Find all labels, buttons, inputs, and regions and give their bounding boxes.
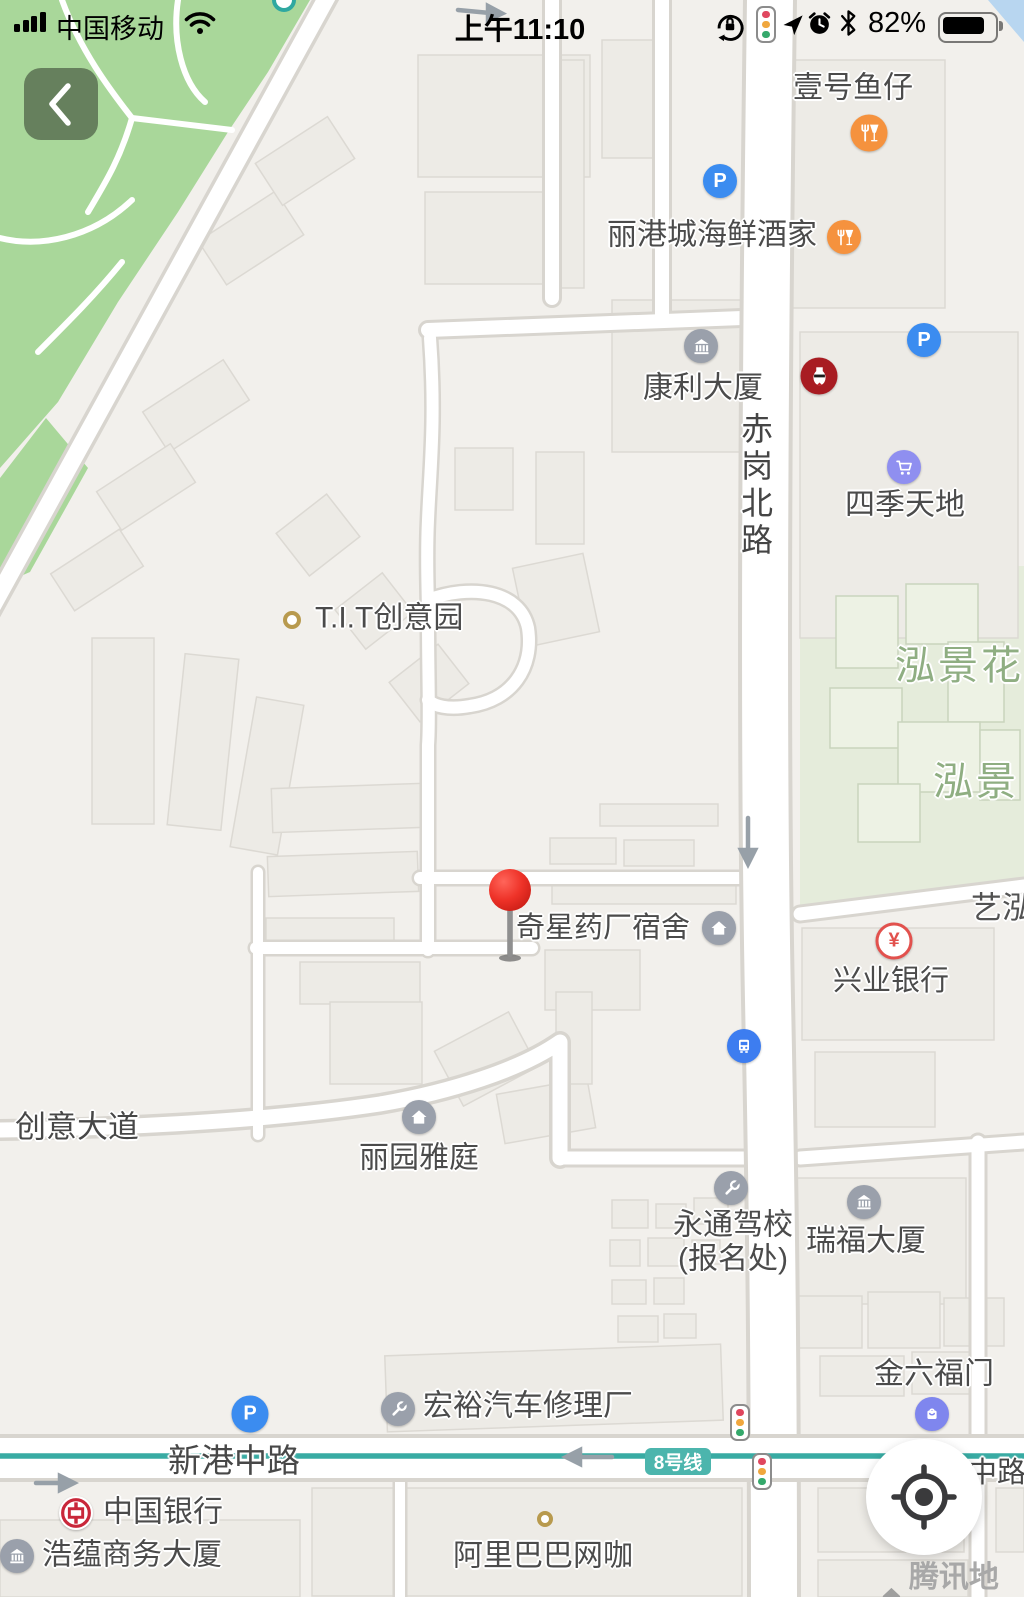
poi-dot-marker[interactable] [283, 611, 301, 629]
watermark-label: 腾讯地图 [909, 1552, 1024, 1597]
map-canvas[interactable] [0, 0, 1024, 1597]
poi-label-yongtong-line1[interactable]: 永通驾校 [673, 1209, 793, 1241]
poi-label-alibaba[interactable]: 阿里巴巴网咖 [453, 1540, 633, 1572]
poi-label-boc[interactable]: 中国银行 [103, 1496, 223, 1528]
poi-label-ruifu[interactable]: 瑞福大厦 [806, 1225, 926, 1257]
locate-me-button[interactable] [866, 1439, 982, 1555]
parking-glyph: P [243, 1403, 256, 1426]
poi-label-kangli[interactable]: 康利大厦 [643, 372, 763, 404]
home-icon[interactable] [702, 911, 736, 945]
area-label-hongjing-1: 泓景花 [895, 633, 1024, 691]
kfc-logo-icon[interactable] [801, 358, 838, 395]
battery-tip [999, 21, 1003, 31]
poi-label-yihaoyuzai[interactable]: 壹号鱼仔 [793, 72, 913, 104]
building-icon[interactable] [0, 1539, 34, 1573]
location-services-icon [779, 12, 806, 39]
poi-label-xingye-bank[interactable]: 兴业银行 [833, 966, 949, 996]
wifi-icon [182, 8, 218, 36]
poi-label-yongtong-line2[interactable]: (报名处) [678, 1243, 788, 1275]
carrier-label: 中国移动 [56, 7, 164, 46]
restaurant-icon[interactable] [851, 115, 888, 152]
parking-glyph: P [917, 329, 930, 352]
battery-icon [938, 12, 998, 43]
status-bar: 中国移动 上午11:10 82% [0, 0, 1024, 48]
poi-label-qixing[interactable]: 奇星药厂宿舍 [516, 913, 690, 943]
poi-dot-marker[interactable] [537, 1511, 553, 1527]
bus-stop-icon [727, 1029, 761, 1063]
traffic-light-icon [730, 1404, 750, 1441]
parking-icon: P [703, 164, 737, 198]
area-label-yihong: 艺泓 [971, 883, 1024, 928]
shopping-bag-icon[interactable] [915, 1397, 949, 1431]
tencent-maps-watermark: 腾讯地图 [878, 1552, 1024, 1597]
parking-icon: P [232, 1396, 269, 1433]
alarm-icon [806, 10, 833, 37]
wrench-icon[interactable] [714, 1171, 748, 1205]
yuan-glyph: ¥ [888, 930, 899, 953]
bank-yuan-icon[interactable]: ¥ [876, 923, 913, 960]
poi-label-tit[interactable]: T.I.T创意园 [315, 602, 463, 634]
bank-of-china-logo[interactable] [59, 1496, 93, 1530]
crosshair-icon [888, 1461, 960, 1533]
poi-label-liyuan[interactable]: 丽园雅庭 [359, 1142, 479, 1174]
bluetooth-icon [838, 8, 859, 38]
map-app-screen: 赤岗北路 新港中路 中路 创意大道 8号线 泓景花 泓景 艺泓 壹号鱼仔 P 丽… [0, 0, 1024, 1597]
home-icon[interactable] [402, 1100, 436, 1134]
wrench-icon[interactable] [381, 1392, 415, 1426]
poi-label-sijitiandi[interactable]: 四季天地 [845, 489, 965, 521]
tencent-maps-logo-icon [878, 1582, 905, 1597]
restaurant-icon[interactable] [827, 220, 861, 254]
building-icon[interactable] [684, 329, 718, 363]
poi-label-haoyun[interactable]: 浩蕴商务大厦 [42, 1539, 222, 1571]
road-label-xingang-middle: 新港中路 [168, 1434, 300, 1482]
orientation-lock-icon [712, 9, 748, 43]
shopping-cart-icon[interactable] [887, 450, 921, 484]
chevron-left-icon [41, 78, 81, 130]
poi-label-hongyu[interactable]: 宏裕汽车修理厂 [423, 1390, 633, 1422]
parking-glyph: P [713, 170, 726, 193]
battery-percent: 82% [868, 7, 926, 40]
road-label-chigang-north: 赤岗北路 [732, 412, 778, 560]
metro-line8-badge: 8号线 [645, 1448, 711, 1475]
parking-icon: P [907, 323, 941, 357]
back-button[interactable] [24, 68, 98, 140]
road-label-chuangyi-avenue: 创意大道 [15, 1102, 139, 1147]
traffic-light-icon [752, 1453, 772, 1490]
building-icon[interactable] [847, 1185, 881, 1219]
area-label-hongjing-2: 泓景 [933, 749, 1019, 807]
poi-label-jinliufu[interactable]: 金六福门 [874, 1358, 994, 1390]
time-label: 上午11:10 [432, 6, 608, 48]
poi-label-ligangcheng[interactable]: 丽港城海鲜酒家 [607, 219, 817, 251]
